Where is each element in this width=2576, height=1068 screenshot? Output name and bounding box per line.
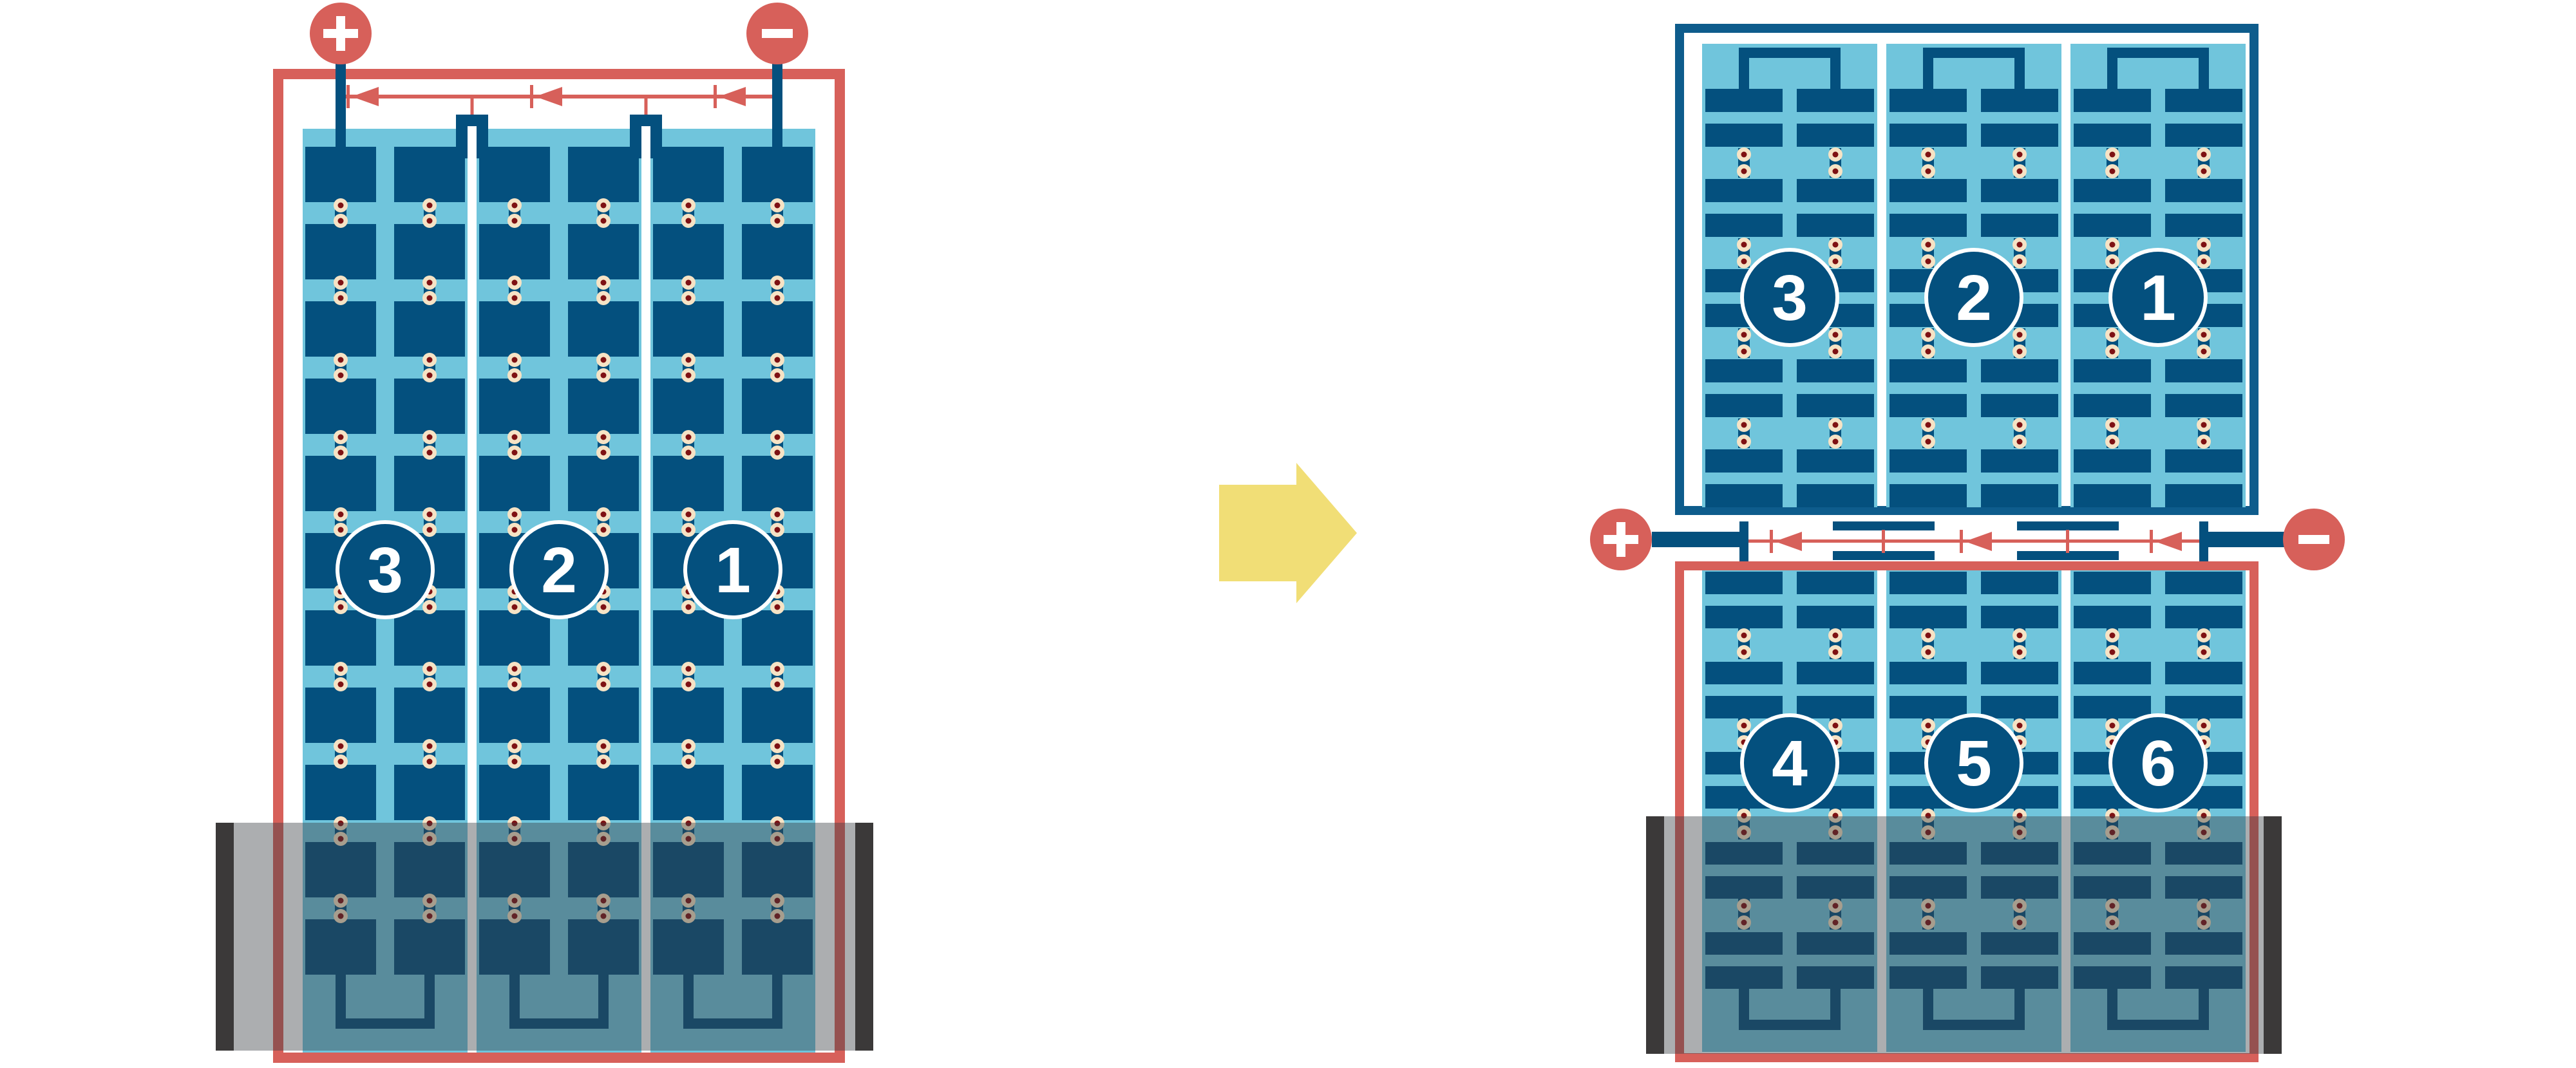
solder-dot-core <box>2201 723 2207 729</box>
diode-bar <box>346 85 350 108</box>
solar-cell <box>394 301 465 357</box>
half-cell <box>2165 214 2242 237</box>
solder-dot-core <box>601 357 607 363</box>
solar-cell <box>479 379 550 434</box>
terminal-stem <box>2206 532 2296 547</box>
solder-dot-core <box>2017 152 2023 158</box>
solder-dot-core <box>338 280 344 286</box>
half-cell <box>1705 606 1783 628</box>
solder-dot-core <box>1833 349 1839 355</box>
half-cell <box>1889 484 1967 507</box>
solar-cell <box>568 147 639 202</box>
string-label-text: 6 <box>2140 727 2176 800</box>
half-cell <box>1981 394 2058 417</box>
solder-dot-core <box>427 450 433 456</box>
solder-dot-core <box>427 373 433 379</box>
solder-dot-core <box>775 218 781 224</box>
half-cell <box>1889 214 1967 237</box>
half-cell <box>1981 359 2058 382</box>
diode-bar <box>714 85 717 108</box>
solar-cell <box>653 301 724 357</box>
solder-dot-core <box>338 435 344 440</box>
positive-terminal <box>310 3 372 64</box>
solar-cell <box>742 456 813 511</box>
half-cell <box>1797 394 1874 417</box>
solder-dot-core <box>512 357 518 363</box>
solder-dot-core <box>775 373 781 379</box>
solder-dot-core <box>686 280 692 286</box>
solder-dot-core <box>512 744 518 749</box>
half-cell <box>2074 572 2151 594</box>
solder-dot-core <box>775 357 781 363</box>
solder-dot-core <box>775 666 781 672</box>
half-cell <box>2165 606 2242 628</box>
half-cell <box>2074 214 2151 237</box>
solder-dot-core <box>2017 439 2023 445</box>
positive-terminal <box>1590 509 1652 570</box>
solar-cell <box>394 379 465 434</box>
diode-bar <box>1960 530 1963 553</box>
half-cell <box>1797 89 1874 112</box>
solder-dot-core <box>1833 242 1839 248</box>
minus-icon <box>2298 535 2329 544</box>
solder-dot-core <box>338 512 344 518</box>
half-cell <box>2074 662 2151 684</box>
string-label-text: 3 <box>1772 262 1808 334</box>
solder-dot-core <box>775 295 781 301</box>
half-cell <box>1797 124 1874 147</box>
shade-edge-bar <box>1646 816 1664 1054</box>
solder-dot-core <box>1926 723 1931 729</box>
solder-dot-core <box>2017 332 2023 338</box>
solder-dot-core <box>427 512 433 518</box>
left-module: 321 <box>216 3 873 1058</box>
half-cell <box>1981 606 2058 628</box>
half-cell <box>1797 662 1874 684</box>
solder-dot-core <box>427 666 433 672</box>
solder-dot-core <box>601 280 607 286</box>
solder-dot-core <box>427 280 433 286</box>
solar-cell <box>742 379 813 434</box>
solar-cell <box>653 765 724 820</box>
solar-cell <box>568 610 639 666</box>
half-cell <box>1889 696 1967 718</box>
plus-icon <box>336 16 345 51</box>
solder-dot-core <box>2017 723 2023 729</box>
solar-cell <box>653 147 724 202</box>
solder-dot-core <box>2201 439 2207 445</box>
diode-bar <box>530 85 533 108</box>
solder-dot-core <box>2201 152 2207 158</box>
solder-dot-core <box>1833 169 1839 174</box>
solder-dot-core <box>2017 650 2023 655</box>
solder-dot-core <box>686 604 692 610</box>
solder-dot-core <box>686 759 692 765</box>
solar-cell <box>479 688 550 743</box>
half-cell <box>1981 214 2058 237</box>
solder-dot-core <box>2110 169 2116 174</box>
solar-cell <box>742 224 813 279</box>
solder-dot-core <box>1833 650 1839 655</box>
string-label-text: 5 <box>1956 727 1992 800</box>
solder-dot-core <box>1741 422 1747 428</box>
diode-triangle <box>719 87 746 106</box>
solder-dot-core <box>338 295 344 301</box>
solder-dot-core <box>1741 169 1747 174</box>
arrow-head <box>1296 463 1357 603</box>
solder-dot-core <box>427 218 433 224</box>
solder-dot-core <box>338 744 344 749</box>
diode-triangle <box>1775 532 1802 551</box>
solder-dot-core <box>2110 259 2116 265</box>
solder-dot-core <box>512 295 518 301</box>
solar-cell <box>479 610 550 666</box>
solder-dot-core <box>2017 422 2023 428</box>
half-cell <box>1981 662 2058 684</box>
solder-dot-core <box>1741 259 1747 265</box>
half-cell <box>2165 179 2242 202</box>
solder-dot-core <box>686 527 692 533</box>
solder-dot-core <box>601 604 607 610</box>
half-cell <box>1981 124 2058 147</box>
solar-cell <box>305 224 376 279</box>
solder-dot-core <box>427 759 433 765</box>
solder-dot-core <box>512 450 518 456</box>
solar-cell <box>653 456 724 511</box>
solder-dot-core <box>512 280 518 286</box>
half-cell <box>1797 572 1874 594</box>
half-cell <box>1889 179 1967 202</box>
half-cell <box>2074 124 2151 147</box>
top-half-panel: 321 <box>1680 28 2254 511</box>
solar-cell <box>394 456 465 511</box>
string-label-text: 1 <box>2140 262 2176 334</box>
half-cell <box>2074 89 2151 112</box>
solder-dot-core <box>1741 633 1747 639</box>
half-cell <box>2074 449 2151 473</box>
solder-dot-core <box>601 218 607 224</box>
solar-cell <box>394 688 465 743</box>
solder-dot-core <box>1926 422 1931 428</box>
solder-dot-core <box>601 744 607 749</box>
solar-cell <box>305 610 376 666</box>
solder-dot-core <box>601 373 607 379</box>
solar-cell <box>568 301 639 357</box>
half-cell <box>1705 662 1783 684</box>
solder-dot-core <box>1833 633 1839 639</box>
solder-dot-core <box>2017 349 2023 355</box>
solder-dot-core <box>686 357 692 363</box>
half-cell <box>2165 662 2242 684</box>
half-cell <box>1889 662 1967 684</box>
solder-dot-core <box>775 682 781 688</box>
solder-dot-core <box>601 435 607 440</box>
solder-dot-core <box>775 203 781 209</box>
half-cell <box>1981 572 2058 594</box>
diode-bar <box>2150 530 2153 553</box>
string-label-text: 2 <box>541 534 577 606</box>
solder-dot-core <box>427 435 433 440</box>
half-cell <box>2074 696 2151 718</box>
half-cell <box>1797 214 1874 237</box>
solder-dot-core <box>601 450 607 456</box>
solar-cell <box>653 688 724 743</box>
solder-dot-core <box>601 512 607 518</box>
solder-dot-core <box>2201 422 2207 428</box>
solder-dot-core <box>512 527 518 533</box>
string-label-text: 3 <box>367 534 403 606</box>
solder-dot-core <box>686 373 692 379</box>
string-tab <box>2017 521 2119 530</box>
solar-cell <box>394 147 465 202</box>
solder-dot-core <box>1741 650 1747 655</box>
solder-dot-core <box>601 527 607 533</box>
half-cell <box>1705 359 1783 382</box>
solder-dot-core <box>1833 422 1839 428</box>
solder-dot-core <box>338 527 344 533</box>
solder-dot-core <box>686 512 692 518</box>
solder-dot-core <box>686 666 692 672</box>
solder-dot-core <box>338 373 344 379</box>
solder-dot-core <box>601 295 607 301</box>
solder-dot-core <box>775 759 781 765</box>
half-cell <box>1889 606 1967 628</box>
shade-edge-bar <box>855 823 873 1051</box>
solder-dot-core <box>686 218 692 224</box>
shade-overlay <box>216 823 873 1051</box>
solar-cell <box>479 147 550 202</box>
solder-dot-core <box>775 527 781 533</box>
terminal-stem <box>772 59 782 162</box>
diode-bus <box>341 85 777 121</box>
solar-cell <box>568 224 639 279</box>
solder-dot-core <box>2201 349 2207 355</box>
solder-dot-core <box>338 604 344 610</box>
solder-dot-core <box>686 203 692 209</box>
solar-cell <box>653 610 724 666</box>
transform-arrow <box>1219 463 1357 603</box>
solder-dot-core <box>1926 439 1931 445</box>
solder-dot-core <box>338 357 344 363</box>
solder-dot-core <box>2110 650 2116 655</box>
solder-dot-core <box>2110 633 2116 639</box>
solar-cell <box>742 610 813 666</box>
top-jumper <box>636 120 656 158</box>
solder-dot-core <box>1741 242 1747 248</box>
right-module: 321456 <box>1590 28 2345 1058</box>
solder-dot-core <box>2110 332 2116 338</box>
half-cell <box>2165 696 2242 718</box>
solar-cell <box>394 610 465 666</box>
solar-cell <box>742 765 813 820</box>
terminal-stem <box>1652 532 1742 547</box>
solder-dot-core <box>1926 169 1931 174</box>
half-cell <box>1705 696 1783 718</box>
solar-cell <box>305 688 376 743</box>
half-cell <box>1889 359 1967 382</box>
string-label-text: 1 <box>715 534 751 606</box>
half-cell <box>1705 89 1783 112</box>
solder-dot-core <box>427 744 433 749</box>
half-cell <box>2074 606 2151 628</box>
solar-cell <box>653 224 724 279</box>
diode-triangle <box>535 87 562 106</box>
solder-dot-core <box>775 604 781 610</box>
solder-dot-core <box>512 759 518 765</box>
shade-edge-bar <box>2264 816 2282 1054</box>
solder-dot-core <box>338 759 344 765</box>
solder-dot-core <box>338 682 344 688</box>
minus-icon <box>762 29 793 38</box>
solder-dot-core <box>1926 633 1931 639</box>
half-cell <box>1981 449 2058 473</box>
solder-dot-core <box>686 682 692 688</box>
solder-dot-core <box>1741 349 1747 355</box>
solder-dot-core <box>2017 169 2023 174</box>
solder-dot-core <box>512 435 518 440</box>
solar-module-shading-diagram: 321321456 <box>0 0 2576 1068</box>
diode-triangle <box>1965 532 1992 551</box>
solder-dot-core <box>427 357 433 363</box>
solder-dot-core <box>1833 723 1839 729</box>
negative-terminal <box>746 3 808 64</box>
solder-dot-core <box>1926 242 1931 248</box>
solder-dot-core <box>512 604 518 610</box>
solar-cell <box>479 224 550 279</box>
solder-dot-core <box>338 666 344 672</box>
solar-cell <box>742 688 813 743</box>
solder-dot-core <box>1926 650 1931 655</box>
solar-cell <box>394 224 465 279</box>
solder-dot-core <box>2017 242 2023 248</box>
half-cell <box>1889 124 1967 147</box>
half-cell <box>2074 484 2151 507</box>
solar-cell <box>479 765 550 820</box>
solar-cell <box>479 301 550 357</box>
terminal-stem <box>336 59 346 162</box>
half-cell <box>1705 484 1783 507</box>
solder-dot-core <box>1833 332 1839 338</box>
solder-dot-core <box>1833 259 1839 265</box>
solder-dot-core <box>2201 650 2207 655</box>
solar-cell <box>568 456 639 511</box>
solder-dot-core <box>1741 723 1747 729</box>
solder-dot-core <box>512 218 518 224</box>
diagram-canvas: 321321456 <box>0 0 2576 1068</box>
solder-dot-core <box>2017 633 2023 639</box>
half-cell <box>1889 394 1967 417</box>
solar-cell <box>479 456 550 511</box>
half-cell <box>2165 89 2242 112</box>
solder-dot-core <box>1833 439 1839 445</box>
half-cell <box>1705 449 1783 473</box>
solar-cell <box>305 301 376 357</box>
half-cell <box>1889 89 1967 112</box>
solder-dot-core <box>512 666 518 672</box>
half-cell <box>2165 359 2242 382</box>
solder-dot-core <box>1833 152 1839 158</box>
arrow-body <box>1219 485 1296 581</box>
negative-terminal <box>2283 509 2345 570</box>
plus-icon <box>1616 522 1625 557</box>
diode-bar <box>1770 530 1773 553</box>
solder-dot-core <box>2110 439 2116 445</box>
half-cell <box>1705 179 1783 202</box>
half-cell <box>1797 449 1874 473</box>
half-cell <box>2165 394 2242 417</box>
half-cell <box>1981 89 2058 112</box>
shade-region <box>1646 816 2282 1054</box>
solder-dot-core <box>2017 259 2023 265</box>
solder-dot-core <box>775 435 781 440</box>
solder-dot-core <box>2110 422 2116 428</box>
half-cell <box>2165 124 2242 147</box>
solder-dot-core <box>1926 259 1931 265</box>
string-label-text: 4 <box>1772 727 1808 800</box>
solder-dot-core <box>427 682 433 688</box>
half-cell <box>1981 179 2058 202</box>
half-cell <box>1705 394 1783 417</box>
half-cell <box>1705 124 1783 147</box>
solder-dot-core <box>512 203 518 209</box>
solder-dot-core <box>775 280 781 286</box>
solder-dot-core <box>2201 633 2207 639</box>
solder-dot-core <box>601 203 607 209</box>
top-jumper <box>462 120 482 158</box>
solder-dot-core <box>338 218 344 224</box>
solder-dot-core <box>512 373 518 379</box>
solder-dot-core <box>2110 242 2116 248</box>
solder-dot-core <box>1741 332 1747 338</box>
half-cell <box>1889 572 1967 594</box>
solder-dot-core <box>427 527 433 533</box>
shade-edge-bar <box>216 823 234 1051</box>
solder-dot-core <box>1741 152 1747 158</box>
half-cell <box>2074 359 2151 382</box>
solder-dot-core <box>775 744 781 749</box>
solder-dot-core <box>2201 169 2207 174</box>
bus-tap <box>2066 530 2069 553</box>
solder-dot-core <box>2110 349 2116 355</box>
shade-region <box>216 823 873 1051</box>
solder-dot-core <box>1741 439 1747 445</box>
solder-dot-core <box>512 682 518 688</box>
solar-cell <box>742 301 813 357</box>
half-cell <box>1797 359 1874 382</box>
half-cell <box>2165 449 2242 473</box>
half-cell <box>1705 572 1783 594</box>
solder-dot-core <box>1926 332 1931 338</box>
half-cell <box>1889 449 1967 473</box>
diode-triangle <box>2155 532 2182 551</box>
solar-cell <box>305 456 376 511</box>
solder-dot-core <box>686 450 692 456</box>
solder-dot-core <box>338 203 344 209</box>
diode-triangle <box>352 87 379 106</box>
half-cell <box>2074 394 2151 417</box>
solar-cell <box>305 765 376 820</box>
half-cell <box>1981 484 2058 507</box>
solder-dot-core <box>775 450 781 456</box>
solar-cell <box>568 379 639 434</box>
half-cell <box>1705 214 1783 237</box>
solder-dot-core <box>601 666 607 672</box>
solder-dot-core <box>686 435 692 440</box>
solder-dot-core <box>427 604 433 610</box>
half-cell <box>2165 484 2242 507</box>
half-cell <box>1797 606 1874 628</box>
solder-dot-core <box>1926 349 1931 355</box>
